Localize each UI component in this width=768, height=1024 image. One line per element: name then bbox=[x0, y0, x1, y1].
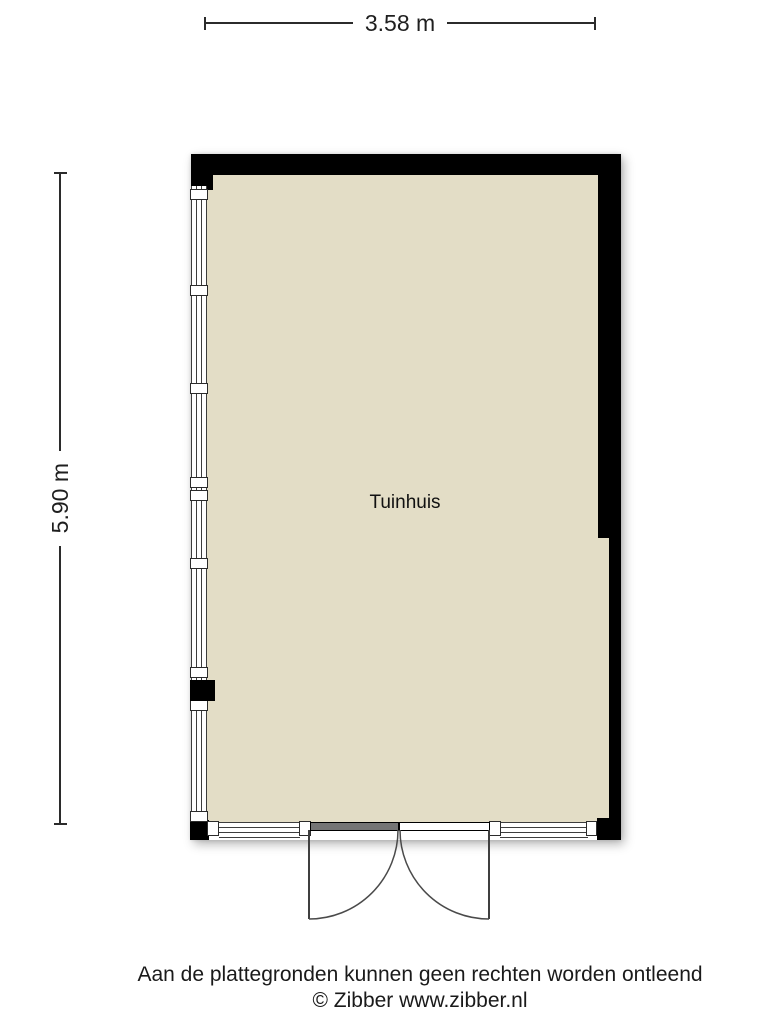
wall-post-left bbox=[190, 680, 215, 701]
window-mullion bbox=[190, 811, 208, 822]
room-label: Tuinhuis bbox=[305, 492, 505, 514]
footer: Aan de plattegronden kunnen geen rechten… bbox=[36, 962, 768, 1014]
window-mullion bbox=[190, 285, 208, 296]
footer-disclaimer: Aan de plattegronden kunnen geen rechten… bbox=[36, 962, 768, 988]
dimension-tick bbox=[594, 17, 596, 30]
window-mullion bbox=[190, 189, 208, 200]
wall-corner-top-left bbox=[191, 154, 213, 190]
dimension-line bbox=[206, 22, 353, 24]
door-panel-left bbox=[308, 830, 310, 919]
dimension-height-label: 5.90 m bbox=[47, 451, 74, 545]
window-mullion bbox=[190, 477, 208, 488]
window-mullion bbox=[190, 700, 208, 711]
wall-top bbox=[191, 154, 621, 175]
window-mullion bbox=[190, 383, 208, 394]
footer-copyright: © Zibber www.zibber.nl bbox=[36, 988, 768, 1014]
window-strip-bottom-right bbox=[500, 822, 588, 838]
window-mullion bbox=[207, 821, 219, 836]
dimension-height: 5.90 m bbox=[46, 172, 74, 825]
door-panel-right bbox=[488, 830, 490, 919]
dimension-width: 3.58 m bbox=[204, 9, 596, 37]
window-mullion bbox=[489, 821, 501, 836]
dimension-line bbox=[59, 546, 61, 823]
door-leaf-closed bbox=[310, 822, 399, 831]
window-mullion bbox=[190, 558, 208, 569]
door-arc-left bbox=[309, 830, 398, 919]
door-opening bbox=[399, 822, 490, 831]
wall-corner-bottom-right bbox=[597, 818, 621, 840]
window-strip-bottom-left bbox=[219, 822, 300, 838]
dimension-line bbox=[447, 22, 594, 24]
window-strip-left bbox=[191, 186, 207, 822]
window-mullion bbox=[586, 821, 597, 836]
wall-right-lower bbox=[609, 538, 621, 822]
dimension-line bbox=[59, 174, 61, 451]
wall-right-upper bbox=[598, 154, 621, 538]
dimension-width-label: 3.58 m bbox=[353, 10, 447, 37]
door-arc-right bbox=[400, 830, 489, 919]
window-mullion bbox=[190, 667, 208, 678]
dimension-tick bbox=[54, 823, 67, 825]
window-mullion bbox=[190, 490, 208, 501]
